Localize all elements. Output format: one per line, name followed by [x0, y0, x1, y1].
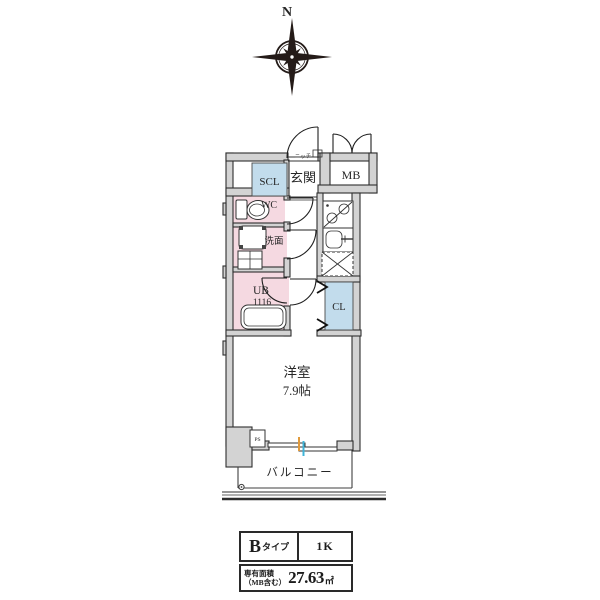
unit-type-main: B — [249, 536, 261, 557]
unit-bath-label: UB — [253, 285, 269, 297]
compass-north-label: N — [282, 5, 292, 20]
spec-table-row-area: 専有面積 （MB含む） 27.63 ㎡ — [239, 564, 353, 592]
spec-table: B タイプ 1K 専有面積 （MB含む） 27.63 ㎡ — [239, 531, 353, 592]
shoe-closet-label: SCL — [259, 176, 279, 188]
washroom-door — [287, 230, 316, 259]
meter-box-doors — [333, 134, 371, 153]
balcony-sliding-window — [268, 437, 337, 456]
balcony-label: バルコニー — [266, 466, 333, 479]
pipe-space-box: PS — [250, 430, 265, 447]
toilet-label: WC — [261, 200, 277, 211]
washer-space — [322, 252, 353, 276]
main-room-size-label: 7.9帖 — [283, 383, 311, 398]
entrance-label: 玄関 — [290, 170, 316, 185]
floorplan-drawing: N — [0, 0, 600, 600]
layout-type-cell: 1K — [299, 533, 351, 560]
site-boundary-lines — [222, 492, 386, 499]
pipe-space-label: PS — [254, 437, 260, 443]
area-value: 27.63 — [288, 568, 324, 588]
room-door — [290, 279, 316, 305]
kitchen-sink-fixture — [323, 228, 353, 252]
bathtub-fixture — [241, 305, 286, 329]
spec-table-row-type: B タイプ 1K — [239, 531, 353, 562]
area-label-line2: （MB含む） — [244, 578, 286, 587]
area-label: 専有面積 （MB含む） — [244, 569, 286, 587]
area-label-line1: 専有面積 — [244, 569, 286, 578]
closet-label: CL — [332, 302, 345, 313]
stove-fixture — [323, 201, 353, 228]
toilet-door — [287, 198, 313, 224]
washroom-label: 洗面 — [264, 235, 283, 247]
unit-bath-size-label: 1116 — [253, 298, 272, 308]
floorplan-page: N — [0, 0, 600, 600]
area-unit: ㎡ — [325, 574, 334, 590]
meter-box-label: MB — [342, 168, 361, 182]
compass-rose: N — [252, 5, 332, 96]
vanity-fixture — [238, 226, 266, 269]
niche-label: ニッチ — [295, 153, 312, 160]
main-room-label: 洋室 — [284, 364, 311, 380]
unit-type-suffix: タイプ — [262, 540, 289, 553]
unit-type-cell: B タイプ — [241, 533, 299, 560]
